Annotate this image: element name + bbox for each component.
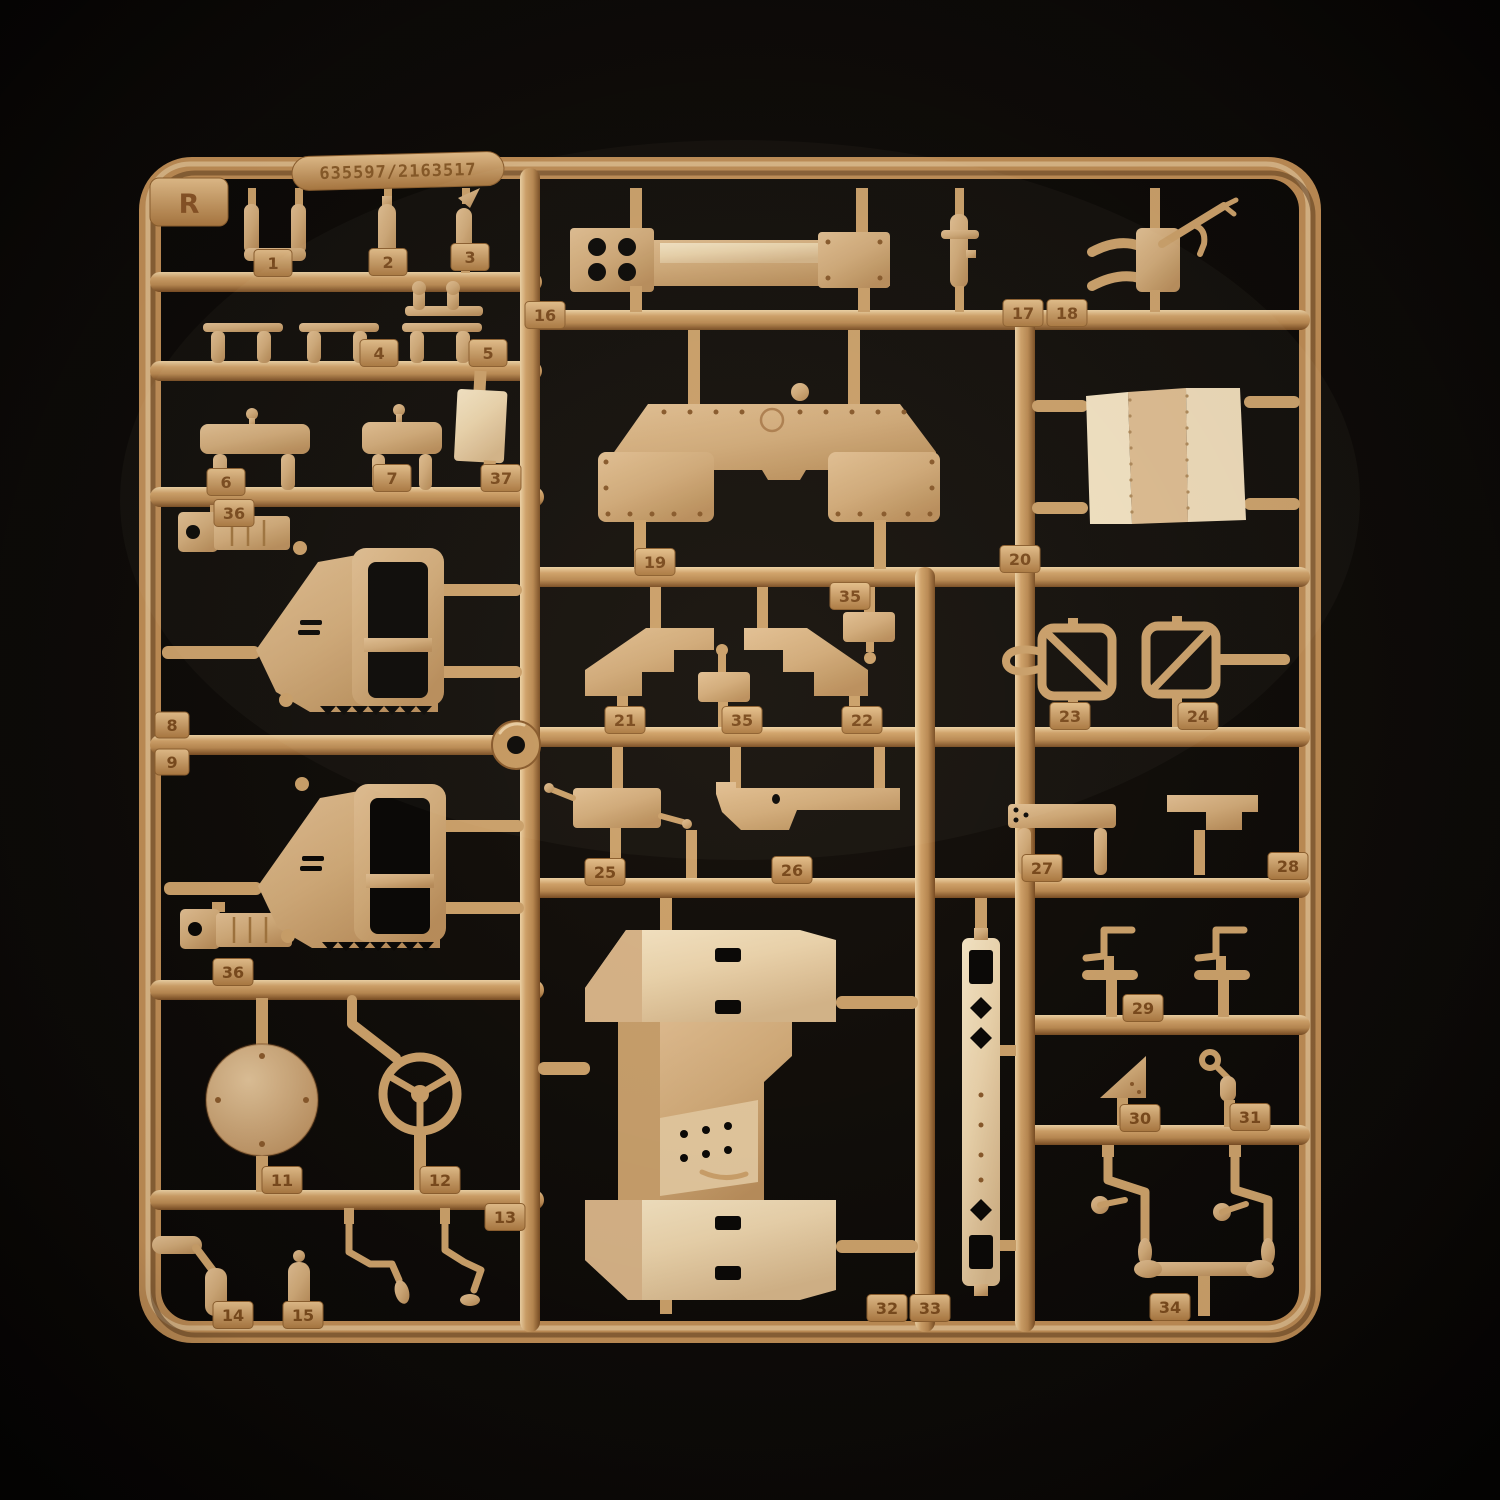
sprue-photo-canvas: R 635597/2163517 1 2 3 4 5 6 7 37 36 8 9… — [0, 0, 1500, 1500]
photo-vignette — [0, 0, 1500, 1500]
photo-model-kit-sprue: R 635597/2163517 1 2 3 4 5 6 7 37 36 8 9… — [0, 0, 1500, 1500]
